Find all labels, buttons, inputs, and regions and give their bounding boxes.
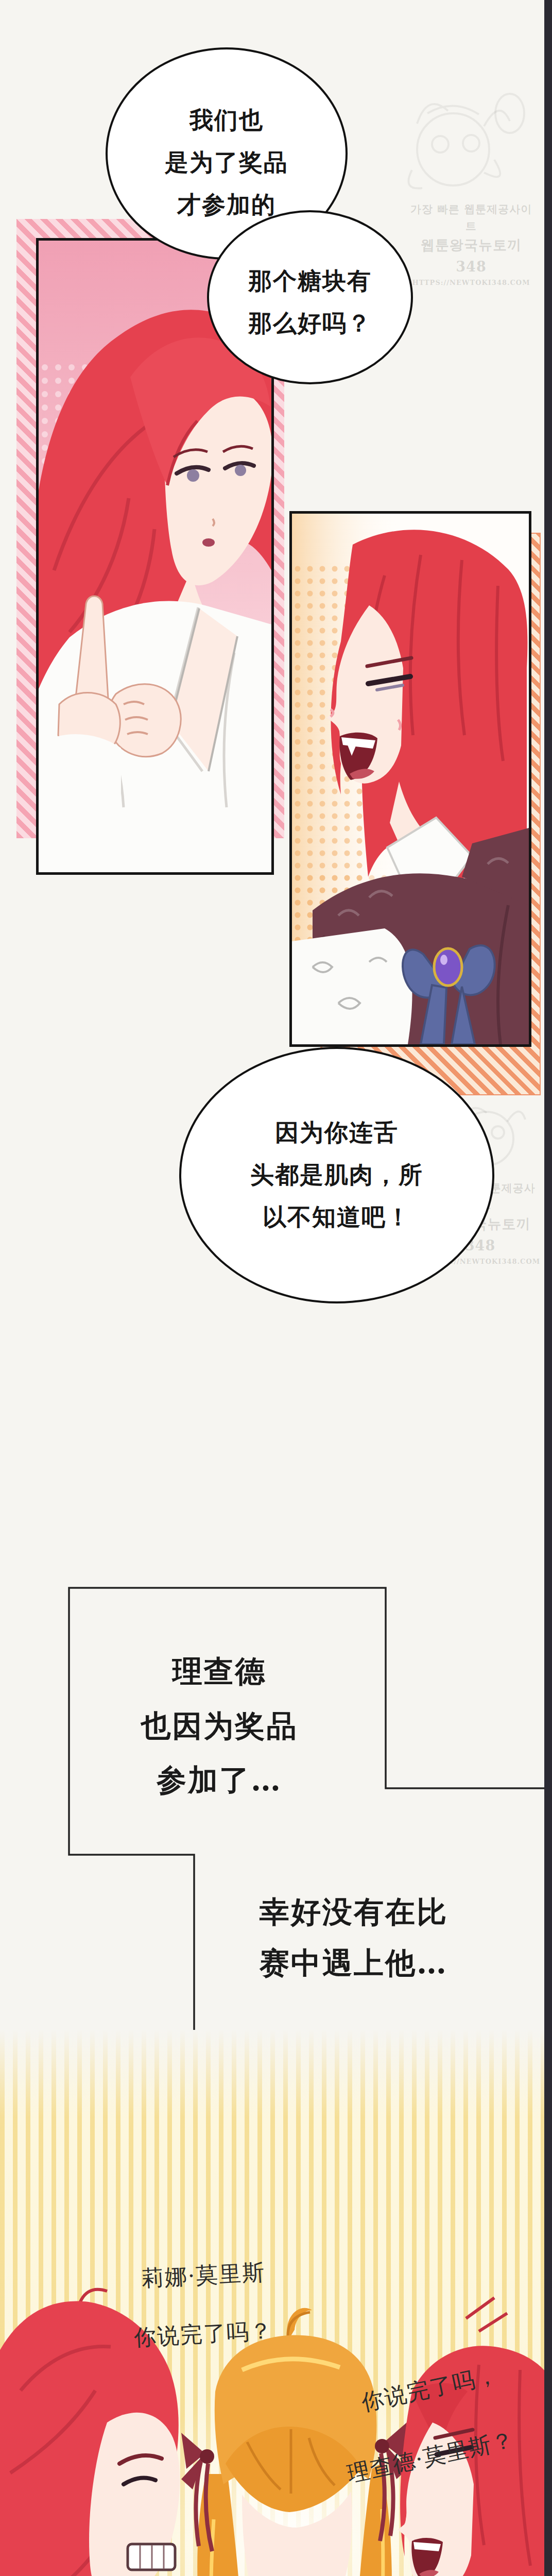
watermark-line3: HTTPS://NEWTOKI348.COM <box>409 278 533 288</box>
thought1-line3: 参加了… <box>75 1753 364 1808</box>
watermark-line1: 가장 빠른 웹툰제공사이트 <box>409 201 533 234</box>
thought2-line1: 幸好没有在比 <box>194 1887 513 1938</box>
bubble2-line1: 那个糖块有 <box>248 260 372 302</box>
page-right-edge-strip <box>544 0 552 2576</box>
watermark-line2: 웹툰왕국뉴토끼348 <box>409 234 533 278</box>
watermark-stamp-top: 가장 빠른 웹툰제공사이트 웹툰왕국뉴토끼348 HTTPS://NEWTOKI… <box>409 201 533 288</box>
bubble1-line1: 我们也 <box>165 99 288 142</box>
thought1-line2: 也因为奖品 <box>75 1699 364 1754</box>
bubble3-line2: 头都是肌肉，所 <box>250 1154 423 1196</box>
bubble3-line1: 因为你连舌 <box>250 1112 423 1154</box>
bubble3-line3: 以不知道吧！ <box>250 1196 423 1239</box>
watermark-mascot-sketch-top <box>355 82 541 201</box>
scene-artwork <box>0 2030 552 2576</box>
panel2-artwork <box>292 514 529 1044</box>
comic-page: 가장 빠른 웹툰제공사이트 웹툰왕국뉴토끼348 HTTPS://NEWTOKI… <box>0 0 552 2576</box>
panel2-woman <box>289 511 531 1047</box>
thought-text-2: 幸好没有在比 赛中遇上他… <box>194 1887 513 1988</box>
scene-bottom: 莉娜·莫里斯 你说完了吗？ 你说完了吗， 理查德·莫里斯？ 争吵 争吵 가장 빠… <box>0 2030 552 2576</box>
speech-bubble-2: 那个糖块有 那么好吗？ <box>207 210 413 384</box>
speech-bubble-3: 因为你连舌 头都是肌肉，所 以不知道吧！ <box>179 1047 494 1303</box>
thought1-line1: 理查德 <box>75 1645 364 1699</box>
bubble2-line2: 那么好吗？ <box>248 302 372 345</box>
bubble1-line2: 是为了奖品 <box>165 142 288 184</box>
thought2-line2: 赛中遇上他… <box>194 1938 513 1989</box>
thought-text-1: 理查德 也因为奖品 参加了… <box>75 1645 364 1808</box>
